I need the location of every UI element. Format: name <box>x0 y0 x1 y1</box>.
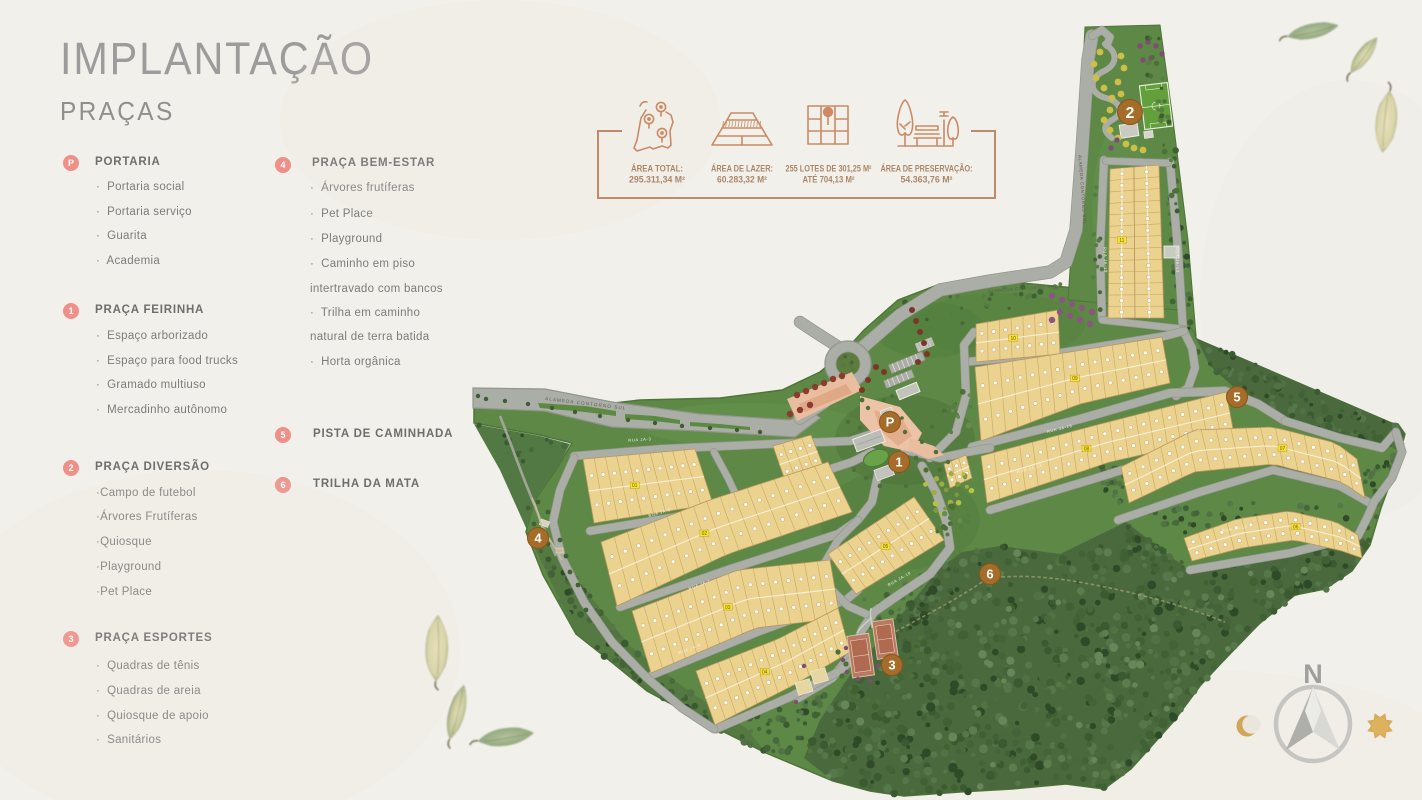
svg-text:ÁREA DE LAZER:: ÁREA DE LAZER: <box>711 164 773 174</box>
svg-text:4: 4 <box>534 531 542 546</box>
svg-text:09: 09 <box>1072 376 1078 382</box>
svg-text:54.363,76 M²: 54.363,76 M² <box>901 175 953 185</box>
svg-text:255 LOTES DE 301,25 M²: 255 LOTES DE 301,25 M² <box>786 164 872 174</box>
svg-text:04: 04 <box>762 670 768 676</box>
svg-text:P: P <box>886 415 895 430</box>
svg-text:03: 03 <box>725 605 731 611</box>
svg-text:N: N <box>1303 659 1323 689</box>
svg-text:11: 11 <box>1119 238 1124 244</box>
svg-text:1: 1 <box>895 455 902 470</box>
svg-text:02: 02 <box>702 531 708 537</box>
svg-text:5: 5 <box>1233 390 1240 405</box>
svg-text:01: 01 <box>632 483 638 489</box>
svg-text:2: 2 <box>1126 105 1135 122</box>
svg-text:60.283,32 M²: 60.283,32 M² <box>717 175 767 185</box>
svg-text:ATÉ 704,13 M²: ATÉ 704,13 M² <box>803 175 855 185</box>
svg-text:07: 07 <box>1280 446 1286 452</box>
svg-text:3: 3 <box>888 658 895 673</box>
svg-text:6: 6 <box>986 567 993 582</box>
svg-text:05: 05 <box>883 544 889 550</box>
svg-text:06: 06 <box>1293 524 1299 530</box>
svg-text:08: 08 <box>1084 447 1090 453</box>
svg-text:ÁREA DE PRESERVAÇÃO:: ÁREA DE PRESERVAÇÃO: <box>881 164 973 174</box>
svg-text:ÁREA TOTAL:: ÁREA TOTAL: <box>631 164 683 174</box>
svg-text:10: 10 <box>1011 336 1017 342</box>
svg-text:RUA JA-13: RUA JA-13 <box>1175 247 1181 273</box>
svg-text:RUA JA-19: RUA JA-19 <box>1103 247 1109 273</box>
svg-text:295.311,34 M²: 295.311,34 M² <box>629 175 685 185</box>
